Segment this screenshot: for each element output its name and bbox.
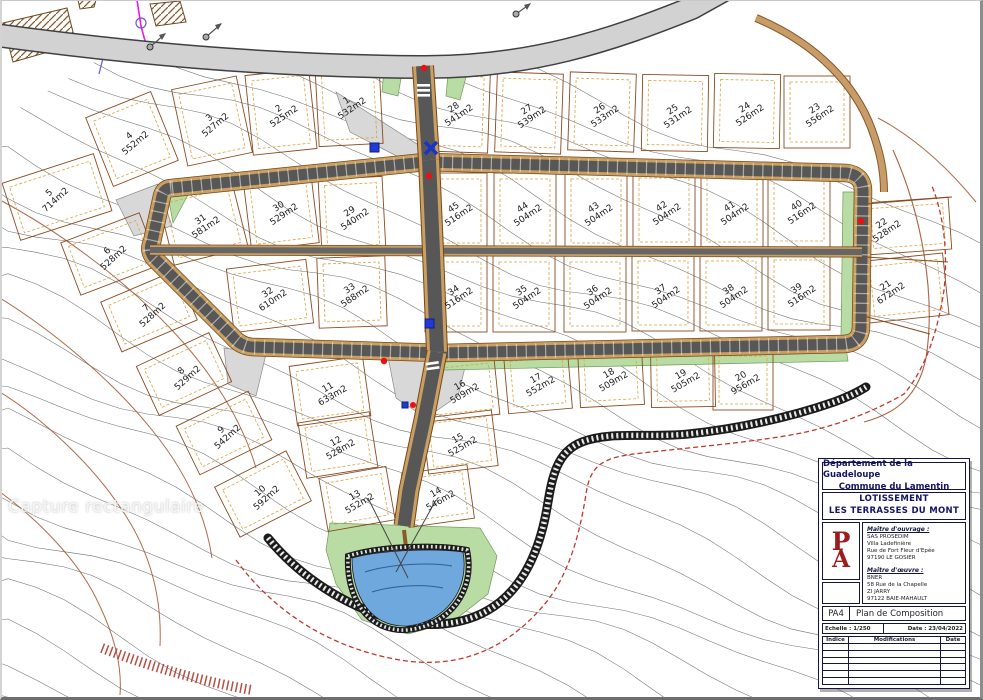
- company-logo: P A: [822, 522, 860, 580]
- top-road: [0, 0, 728, 67]
- client-line: Rue de Fort Fleur d'Epée: [867, 548, 961, 555]
- lot-label-2: 2525m2: [263, 96, 300, 130]
- blue-square-marker: [402, 402, 408, 408]
- blue-square-marker: [370, 143, 379, 152]
- revision-row: [823, 658, 965, 665]
- client-lines: SAS PROSEDIM Villa Ladefinière Rue de Fo…: [867, 534, 961, 563]
- lot-label-30: 30529m2: [263, 194, 300, 228]
- lot-label-38: 38504m2: [713, 277, 750, 311]
- lot-label-14: 14546m2: [420, 481, 457, 514]
- lot-label-12: 12528m2: [320, 430, 357, 463]
- revision-row: [823, 664, 965, 671]
- red-dot-marker: [381, 358, 387, 364]
- sheet-code: PA4: [823, 607, 850, 620]
- scale-label: Echelle : 1/250: [823, 624, 884, 633]
- project-name: LES TERRASSES DU MONT: [829, 506, 959, 518]
- lot-label-44: 44504m2: [507, 195, 544, 229]
- lot-label-28: 28541m2: [438, 95, 475, 129]
- lot-label-10: 10592m2: [246, 477, 283, 513]
- department-name: Département de la Guadeloupe: [823, 459, 965, 482]
- revision-row: [823, 644, 965, 651]
- red-dot-marker: [858, 218, 864, 224]
- title-block-middle: P A Maître d'ouvrage : SAS PROSEDIM Vill…: [822, 522, 966, 604]
- designer-lines: BNER 58 Rue de la Chapelle ZI JARRY 9712…: [867, 575, 961, 604]
- red-dot-marker: [410, 402, 416, 408]
- lot-label-27: 27539m2: [511, 97, 548, 131]
- rock-hatch-band: [102, 648, 252, 690]
- lot-label-4: 4552m2: [114, 122, 151, 157]
- designer-line: BNER: [867, 575, 961, 582]
- utility-pole-icon: [513, 3, 531, 17]
- lot-label-41: 41504m2: [714, 194, 751, 228]
- title-block: Département de la Guadeloupe Commune du …: [818, 458, 970, 689]
- lot-label-5: 5714m2: [35, 179, 72, 215]
- lot-label-43: 43504m2: [578, 195, 615, 229]
- designer-line: ZI JARRY: [867, 589, 961, 596]
- lot-label-19: 19505m2: [665, 363, 702, 396]
- red-dot-marker: [426, 173, 432, 179]
- lot-label-3: 3527m2: [194, 104, 231, 139]
- lot-label-13: 13552m2: [339, 484, 376, 517]
- lot-label-8: 8529m2: [167, 357, 204, 393]
- lot-label-40: 40516m2: [781, 193, 818, 227]
- project-title: LOTISSEMENT LES TERRASSES DU MONT: [822, 492, 966, 520]
- scale-date-row: Echelle : 1/250 Date : 23/04/2022: [822, 623, 966, 634]
- client-line: 97190 LE GOSIER: [867, 555, 961, 562]
- rev-col-date: Date: [941, 637, 965, 643]
- lot-label-39: 39516m2: [781, 276, 818, 310]
- lot-label-23: 23556m2: [799, 96, 836, 130]
- revision-header-row: Indice Modifications Date: [823, 637, 965, 644]
- utility-pole-icons: [147, 3, 531, 50]
- lot-label-7: 7528m2: [132, 294, 169, 330]
- lot-label-45: 45516m2: [438, 195, 475, 229]
- lot-label-26: 26533m2: [584, 96, 621, 130]
- lot-label-29: 29540m2: [334, 199, 371, 233]
- revision-table: Indice Modifications Date: [822, 636, 966, 685]
- designer-line: 97122 BAIE-MAHAULT: [867, 596, 961, 603]
- sheet-row: PA4 Plan de Composition: [822, 606, 966, 621]
- project-type: LOTISSEMENT: [859, 494, 928, 506]
- lot-label-36: 36504m2: [577, 278, 614, 312]
- revision-row: [823, 651, 965, 658]
- red-dot-marker: [421, 65, 427, 71]
- designer-label: Maître d'œuvre :: [867, 567, 961, 574]
- rev-col-modifications: Modifications: [849, 637, 941, 643]
- revision-row: [823, 678, 965, 684]
- date-label: Date : 23/04/2022: [884, 624, 965, 633]
- lot-label-15: 15525m2: [442, 427, 479, 460]
- lot-label-35: 35504m2: [506, 278, 543, 312]
- lot-label-6: 6528m2: [93, 237, 130, 273]
- mid-road: [150, 250, 862, 252]
- blue-square-marker: [425, 319, 434, 328]
- lot-label-33: 33588m2: [334, 276, 371, 310]
- client-label: Maître d'ouvrage :: [867, 526, 961, 533]
- lot-label-25: 25531m2: [657, 97, 694, 131]
- lot-label-32: 32610m2: [252, 280, 289, 314]
- rev-col-indice: Indice: [823, 637, 849, 643]
- logo-letter-a: A: [832, 551, 850, 569]
- utility-pole-icon: [203, 23, 222, 40]
- empty-box: [822, 582, 860, 604]
- lot-label-17: 17552m2: [520, 367, 557, 400]
- stakeholders-panel: Maître d'ouvrage : SAS PROSEDIM Villa La…: [862, 522, 966, 604]
- lot-label-11: 11633m2: [312, 376, 349, 409]
- sheet-title: Plan de Composition: [850, 607, 965, 620]
- revision-row: [823, 671, 965, 678]
- designer-line: 58 Rue de la Chapelle: [867, 582, 961, 589]
- lot-label-24: 24526m2: [729, 95, 766, 129]
- lot-label-21: 21672m2: [870, 273, 907, 307]
- ring-road: [150, 162, 863, 353]
- title-block-header: Département de la Guadeloupe Commune du …: [822, 462, 966, 490]
